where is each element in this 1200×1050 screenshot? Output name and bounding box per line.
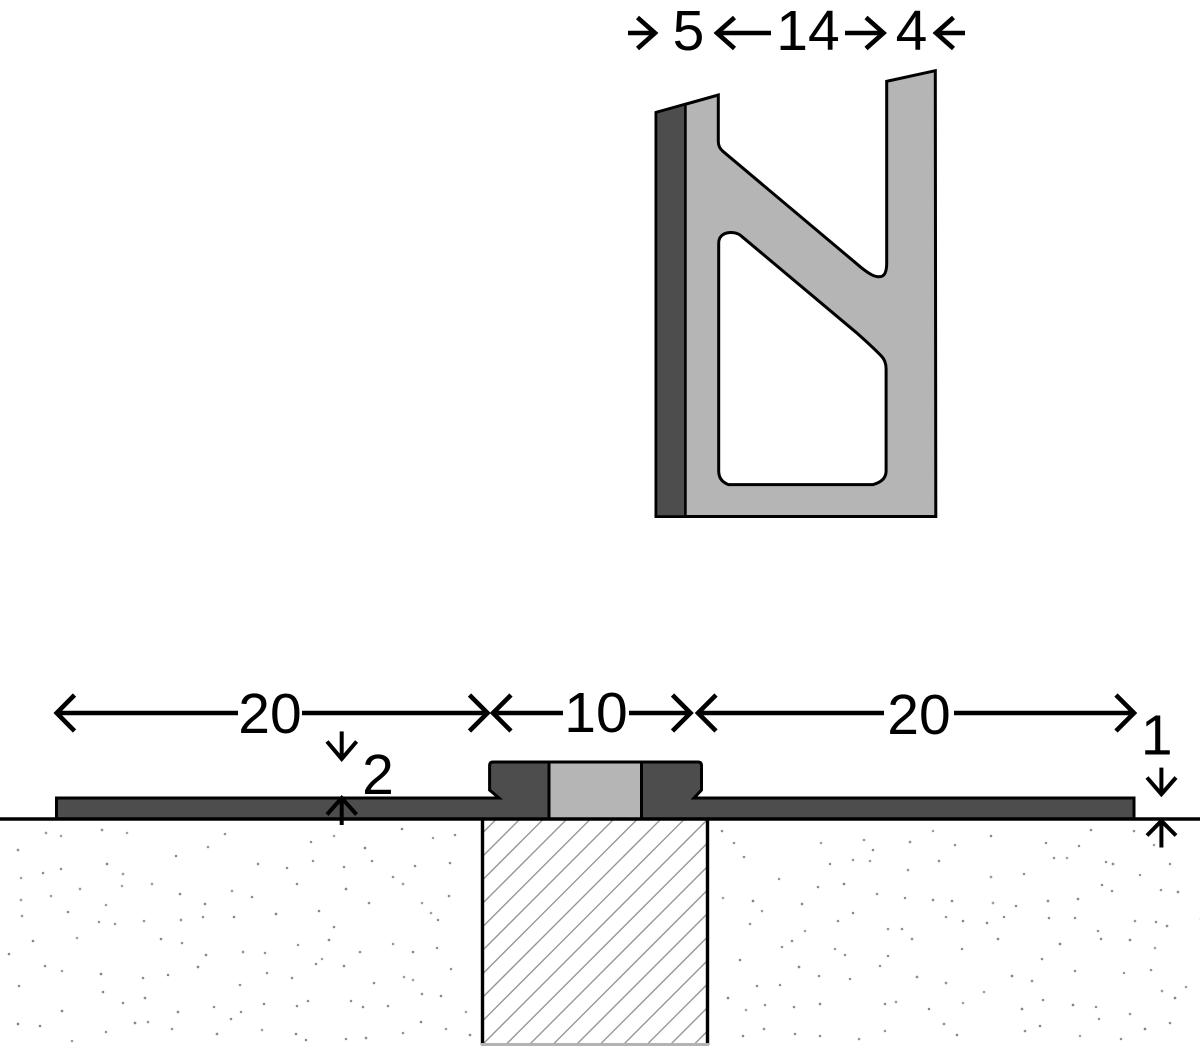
- svg-text:2: 2: [362, 743, 394, 807]
- svg-text:5: 5: [673, 0, 705, 63]
- svg-text:20: 20: [238, 682, 301, 746]
- svg-text:20: 20: [887, 683, 950, 747]
- svg-text:10: 10: [564, 681, 627, 745]
- svg-text:4: 4: [896, 0, 928, 63]
- svg-text:1: 1: [1141, 704, 1173, 768]
- svg-text:14: 14: [776, 0, 839, 63]
